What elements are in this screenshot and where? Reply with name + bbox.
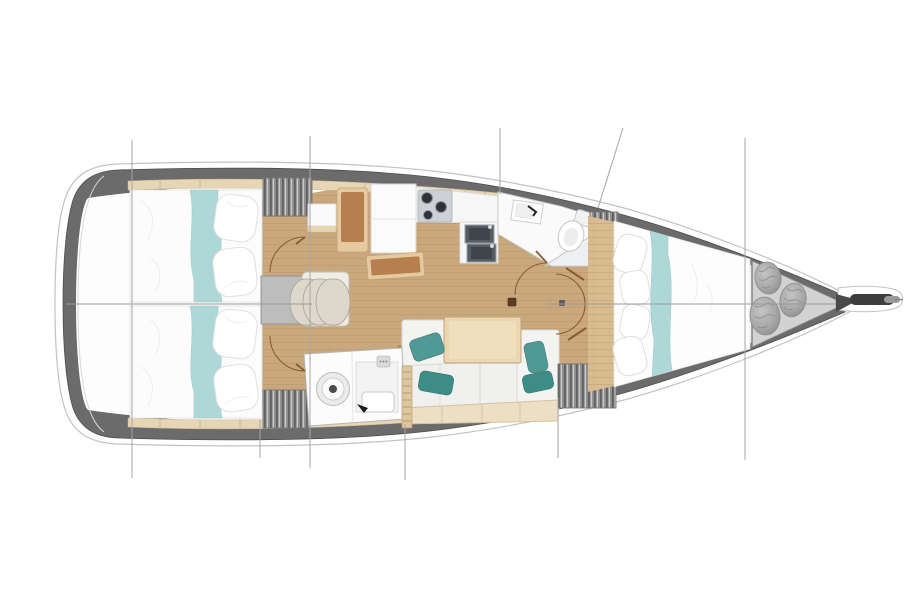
entry-panel-trim: [308, 226, 336, 232]
boat-floorplan: [0, 0, 909, 600]
floorplan-stage: [0, 0, 909, 600]
salon: [398, 317, 559, 424]
nav-desk: [366, 252, 425, 280]
pillow: [211, 246, 259, 299]
nav-seat-cushion: [341, 192, 364, 242]
locker-hatch-port: [263, 178, 312, 216]
step-strip: [402, 366, 412, 428]
mast-step: [508, 298, 516, 306]
washer-icon: [317, 373, 350, 406]
aft-berth-starboard: [130, 306, 262, 418]
head-aft: [304, 348, 412, 428]
salon-table: [444, 317, 521, 363]
burner-icon: [424, 211, 433, 220]
pillow: [212, 362, 260, 413]
faucet-icon: [488, 225, 492, 229]
bow: [748, 260, 903, 347]
door-hinge-dot: [559, 300, 565, 306]
stove: [418, 190, 452, 222]
aft-berth-port: [130, 190, 262, 302]
faucet-icon: [490, 244, 494, 248]
vent-chip-icon: [377, 356, 390, 367]
galley-sinks: [465, 225, 496, 262]
bowsprit: [836, 286, 903, 312]
locker-hatch-starboard: [263, 390, 309, 428]
head-sink: [511, 200, 543, 224]
pillow: [211, 308, 259, 361]
companionway: [261, 272, 350, 326]
pillow: [212, 192, 260, 243]
stair-step: [316, 279, 350, 325]
rig-stay-line: [598, 128, 623, 208]
burner-icon: [436, 202, 447, 213]
burner-icon: [422, 193, 433, 204]
